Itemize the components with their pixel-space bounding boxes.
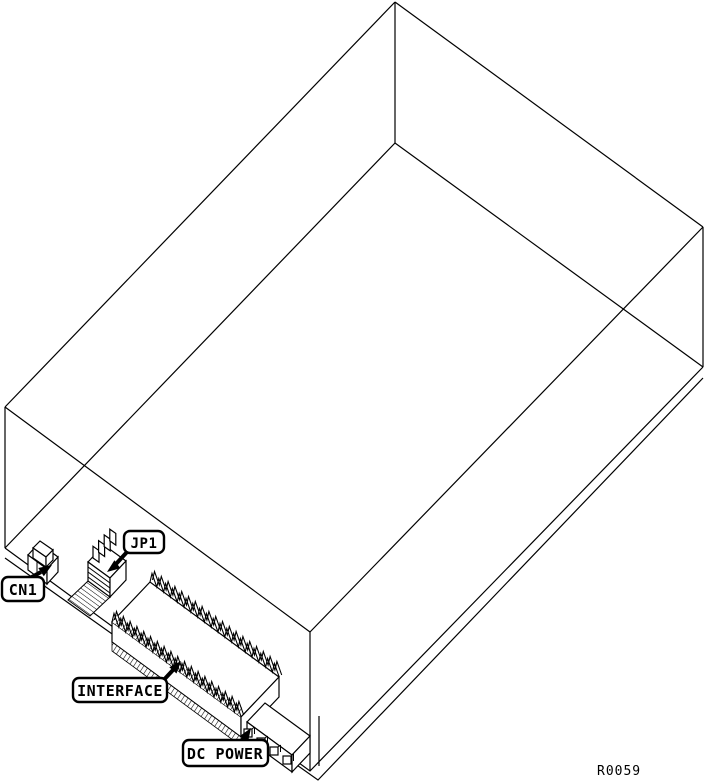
edge-front-right-top [310, 227, 703, 632]
interface-label: INTERFACE [77, 682, 163, 700]
jp1-label: JP1 [131, 536, 158, 552]
jp1-connector [68, 529, 126, 616]
drive-connector-diagram: CN1 JP1 INTERFACE DC POWER R0059 [0, 0, 704, 784]
diagram-canvas: CN1 JP1 INTERFACE DC POWER R0059 [0, 0, 704, 784]
edge-bottom-back-right [395, 143, 703, 367]
figure-ref: R0059 [597, 764, 641, 779]
edge-top-right [395, 2, 703, 227]
callout-cn1: CN1 [2, 565, 52, 601]
dc-power-pin [270, 747, 278, 755]
dc-power-pin [283, 756, 291, 764]
cn1-label: CN1 [9, 581, 38, 599]
dc-power-label: DC POWER [187, 745, 264, 763]
chassis-wireframe [5, 2, 703, 780]
